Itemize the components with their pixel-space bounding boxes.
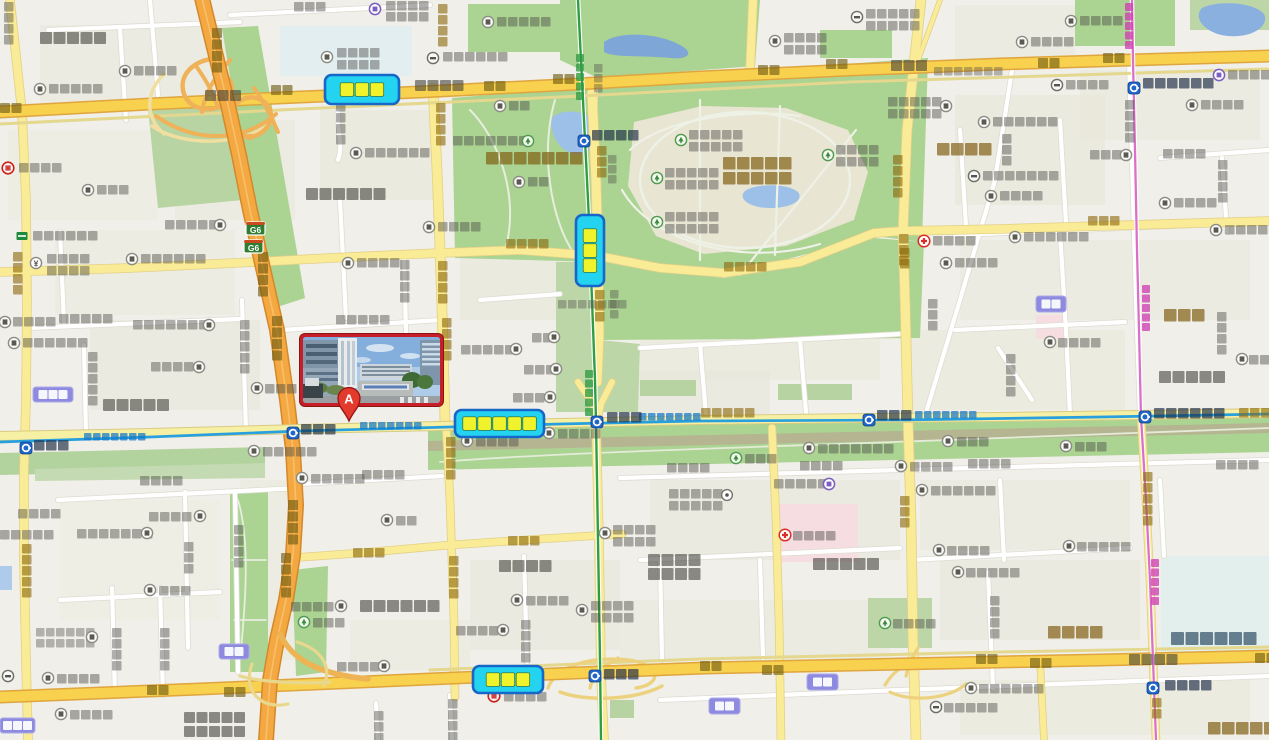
svg-text:¥: ¥	[34, 258, 39, 268]
svg-text:G6: G6	[250, 225, 262, 235]
svg-text:G6: G6	[248, 243, 260, 253]
svg-text:A: A	[344, 392, 354, 407]
